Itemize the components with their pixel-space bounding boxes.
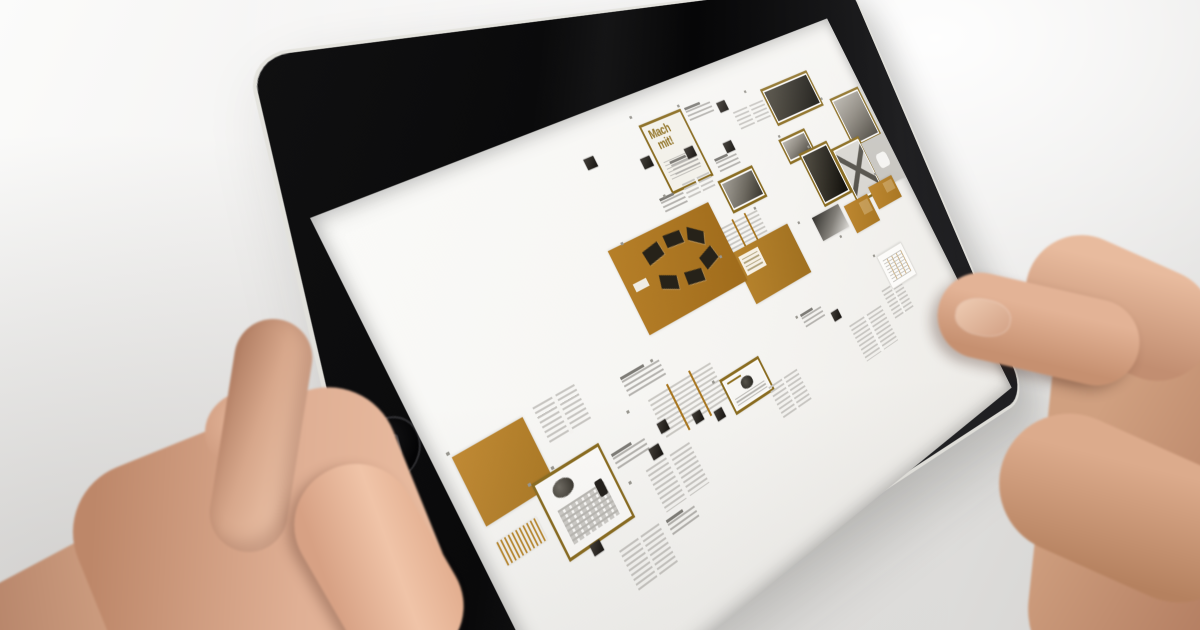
photo-scene: Machmit!	[0, 0, 1200, 630]
right-hand	[920, 140, 1200, 630]
left-hand	[0, 280, 520, 630]
